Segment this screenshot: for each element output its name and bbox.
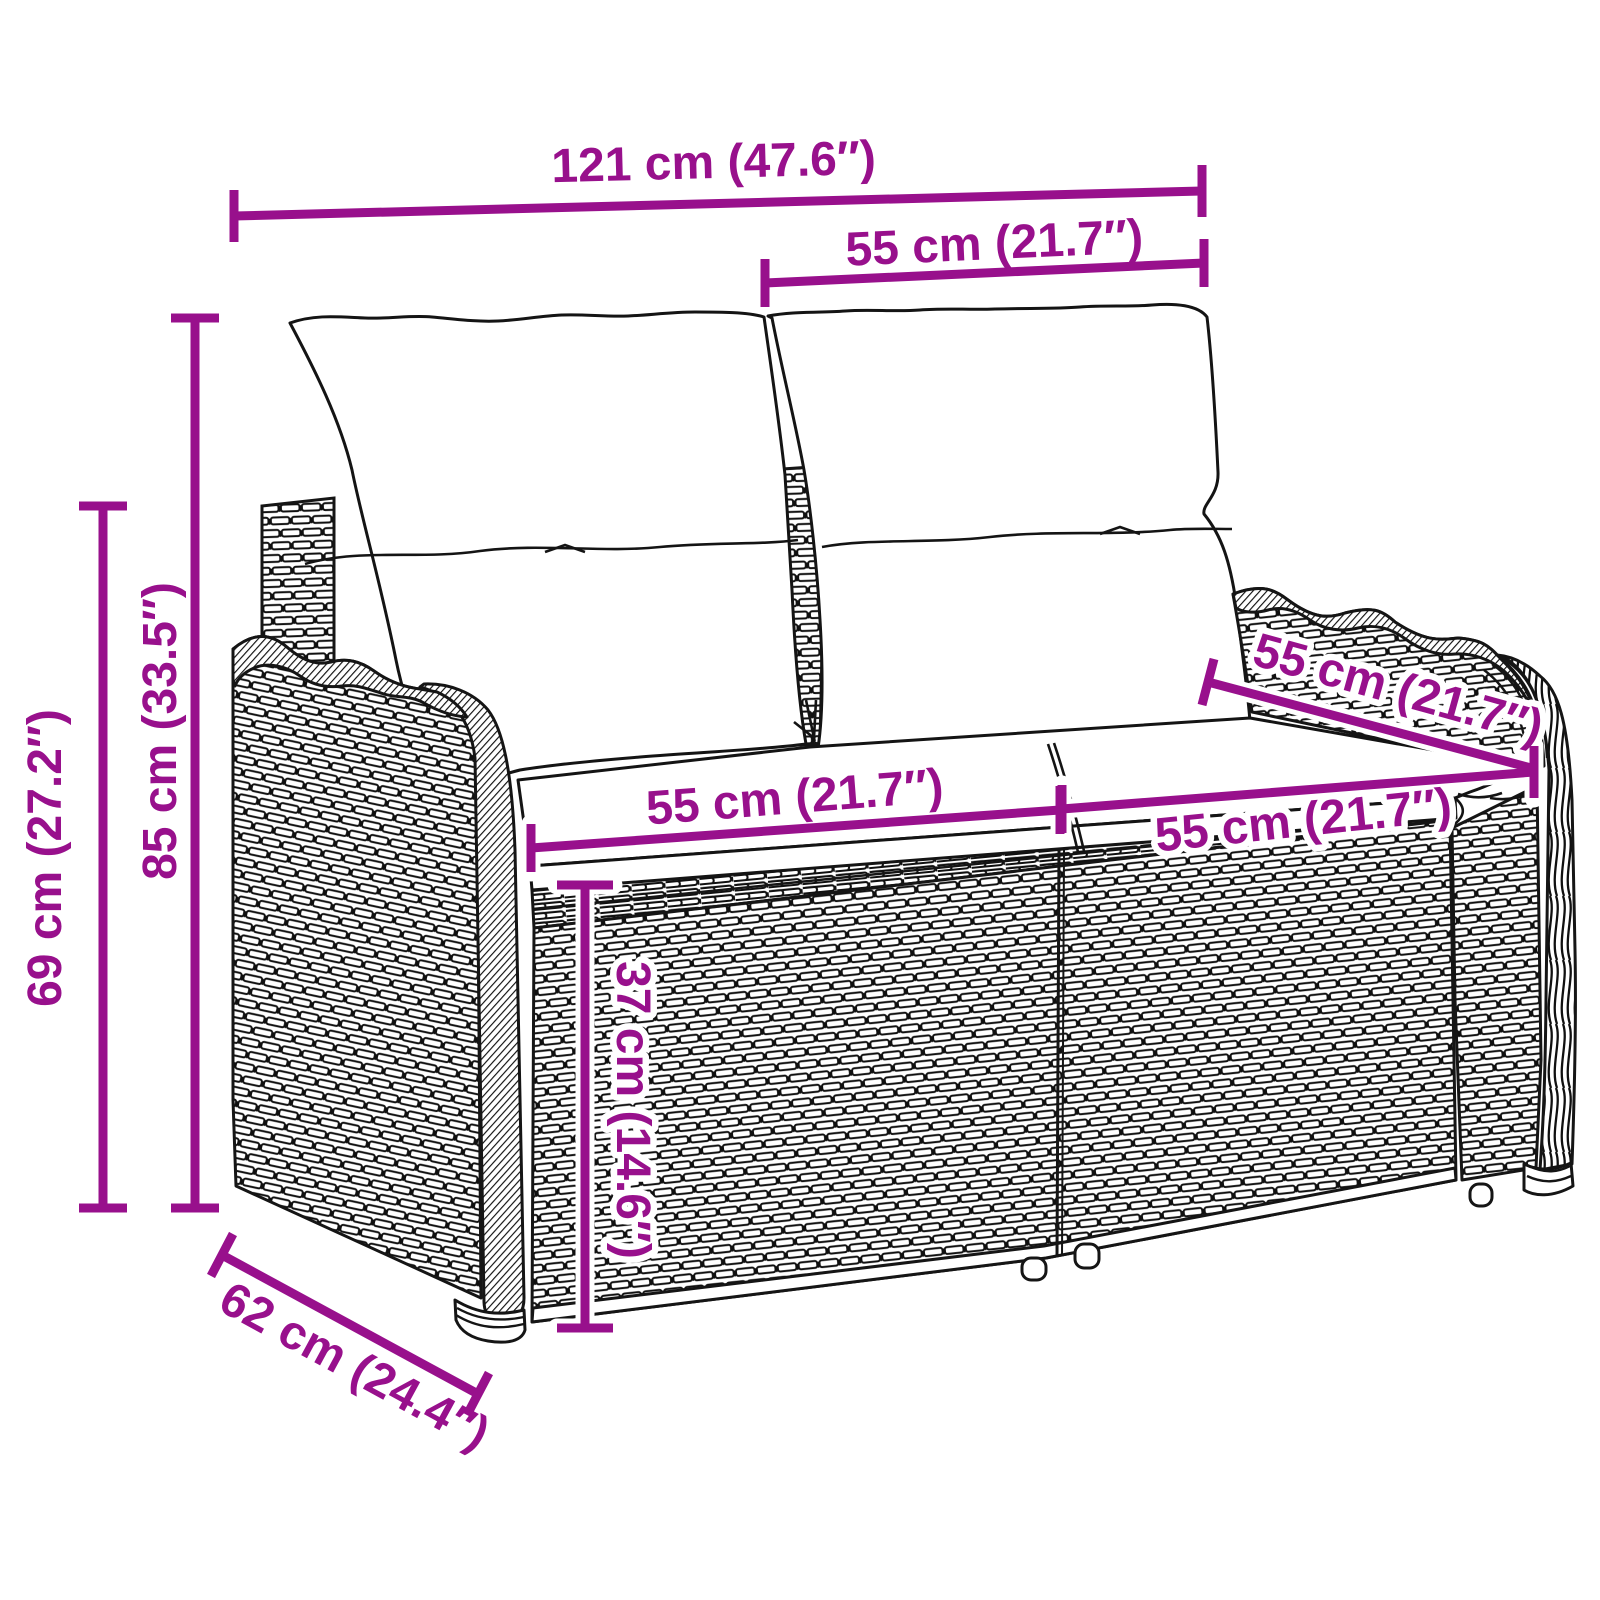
svg-text:85 cm (33.5″): 85 cm (33.5″) (134, 582, 187, 880)
svg-text:37 cm (14.6″): 37 cm (14.6″) (606, 961, 659, 1259)
svg-text:69 cm (27.2″): 69 cm (27.2″) (19, 709, 72, 1007)
svg-text:121 cm (47.6″): 121 cm (47.6″) (551, 132, 877, 193)
